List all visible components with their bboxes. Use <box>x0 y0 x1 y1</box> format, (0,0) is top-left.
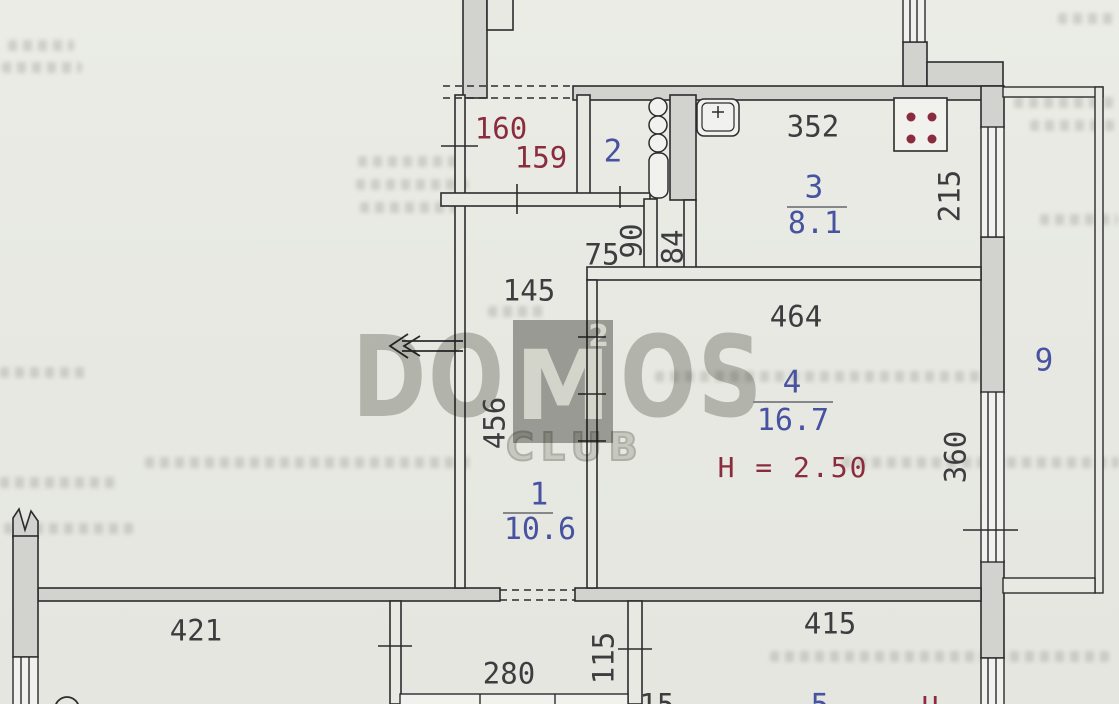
dim-red-159: 159 <box>515 144 567 173</box>
axis-marker-partial <box>55 697 79 704</box>
room-number-5-partial: 5 <box>811 691 830 704</box>
dim-421: 421 <box>170 617 222 646</box>
floor-plan-page: DO M 2 OS CLUB 160 159 2 352 215 3 8.1 7… <box>0 0 1119 704</box>
room-number-2: 2 <box>604 137 623 168</box>
room-area-4: 16.7 <box>757 406 829 436</box>
watermark-sup2: 2 <box>588 322 609 352</box>
dim-280: 280 <box>483 660 535 689</box>
dim-456: 456 <box>481 397 510 449</box>
dim-15-partial: 15 <box>640 691 675 704</box>
ceiling-height-label: H = 2.50 <box>718 454 869 482</box>
watermark-os: OS <box>620 322 764 434</box>
watermark-club: CLUB <box>506 428 645 466</box>
stove-icon <box>894 98 947 151</box>
dim-red-160: 160 <box>475 115 527 144</box>
room-area-3: 8.1 <box>788 209 842 239</box>
room-area-1: 10.6 <box>504 515 576 545</box>
pipes-icon <box>649 98 668 198</box>
dim-145: 145 <box>503 277 555 306</box>
dim-415: 415 <box>804 610 856 639</box>
dim-84: 84 <box>659 230 688 265</box>
wall-break-symbol <box>13 509 38 538</box>
dim-360: 360 <box>942 431 971 483</box>
room-number-9: 9 <box>1035 346 1054 377</box>
dim-215: 215 <box>936 170 965 222</box>
room-number-3: 3 <box>805 173 824 204</box>
room-number-4: 4 <box>783 368 802 399</box>
dim-90: 90 <box>618 224 647 259</box>
partial-h-label: H <box>922 693 941 704</box>
balcony-outline <box>1003 87 1103 593</box>
room-number-1: 1 <box>530 480 549 511</box>
dim-352: 352 <box>787 113 839 142</box>
kitchen-sink-icon <box>697 99 739 136</box>
dim-115: 115 <box>590 632 619 684</box>
dim-464: 464 <box>770 303 822 332</box>
